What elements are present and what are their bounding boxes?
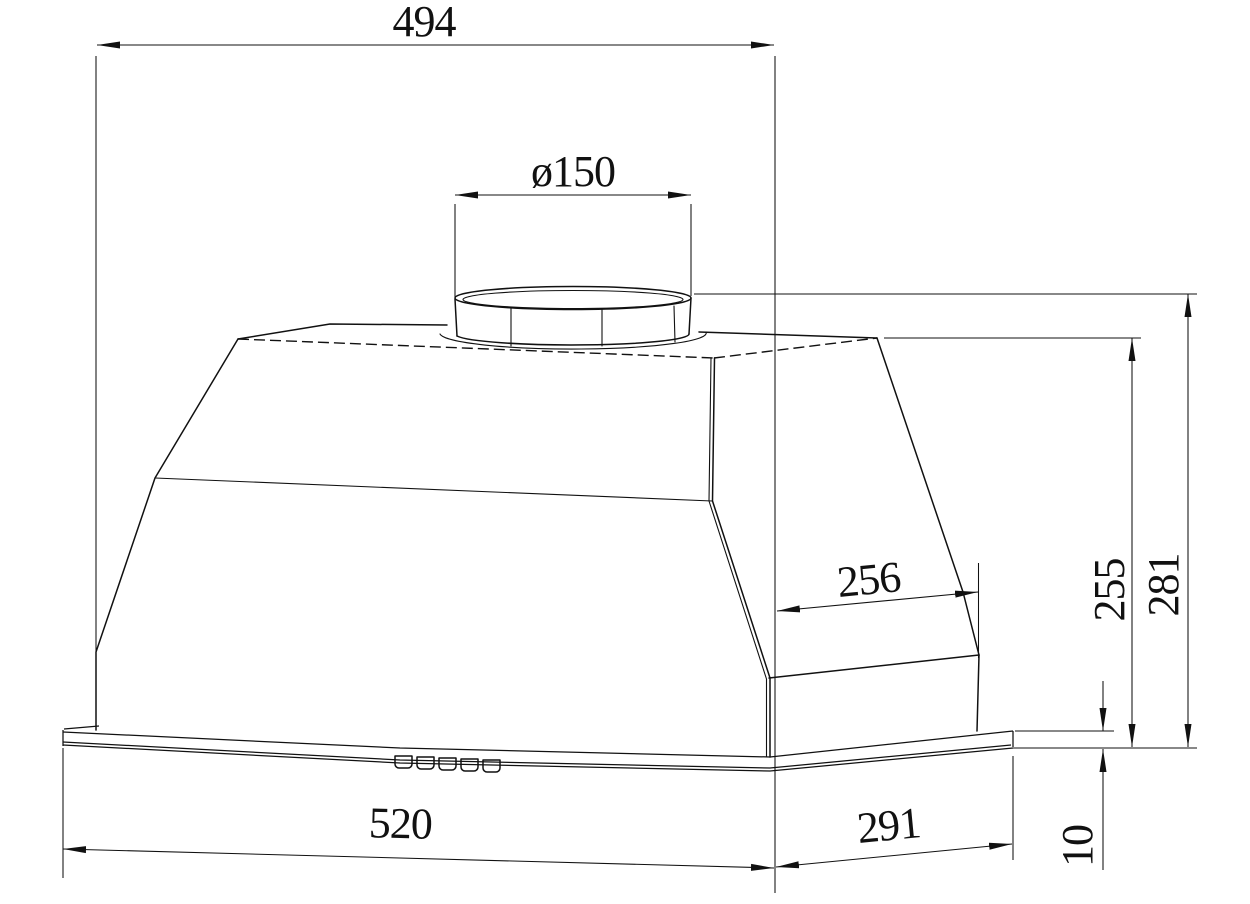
dim-base-width-line [63, 849, 774, 868]
dim-label-body-height: 255 [1085, 559, 1134, 622]
hood-body-outline [96, 324, 979, 757]
hood-top-right-edge [714, 338, 877, 358]
dim-label-duct-diameter: ø150 [531, 147, 615, 196]
drawing-canvas: 494 ø150 256 255 281 520 291 10 [0, 0, 1250, 904]
duct-seam-3 [674, 306, 675, 342]
dim-label-overall-height: 281 [1139, 554, 1188, 617]
dim-duct-diameter [455, 195, 691, 297]
hood-right-face-bottom-edge [769, 655, 979, 678]
hood-front-right-edge [713, 358, 771, 757]
plate-back-sliver [64, 726, 99, 729]
control-button-1[interactable] [395, 756, 412, 768]
hood-front-right-edge-inner [709, 358, 767, 757]
hood-right-slope-edge [877, 338, 979, 655]
hood-left-edge [96, 339, 238, 730]
dim-body-height [884, 338, 1141, 747]
hood-top-front-edge [238, 339, 714, 358]
dim-label-side-depth: 256 [835, 552, 902, 607]
dim-label-base-thickness: 10 [1053, 825, 1102, 867]
dim-label-top-width: 494 [393, 0, 457, 46]
dim-label-base-width: 520 [368, 798, 432, 849]
hood-right-lower-edge [977, 655, 979, 731]
hood-top-back-edge-right [699, 332, 877, 338]
base-plate [63, 726, 1013, 771]
duct-bottom-arc [457, 334, 689, 345]
duct-rim-inner [463, 291, 683, 309]
hood-top-back-edge-left [238, 324, 447, 339]
hood-front-crease [155, 478, 712, 501]
dim-label-base-depth: 291 [855, 798, 922, 853]
dimension-labels: 494 ø150 256 255 281 520 291 10 [368, 0, 1188, 867]
duct-side-right [689, 298, 691, 334]
technical-drawing: 494 ø150 256 255 281 520 291 10 [0, 0, 1250, 904]
duct-collar [440, 287, 706, 350]
duct-side-left [455, 299, 457, 336]
